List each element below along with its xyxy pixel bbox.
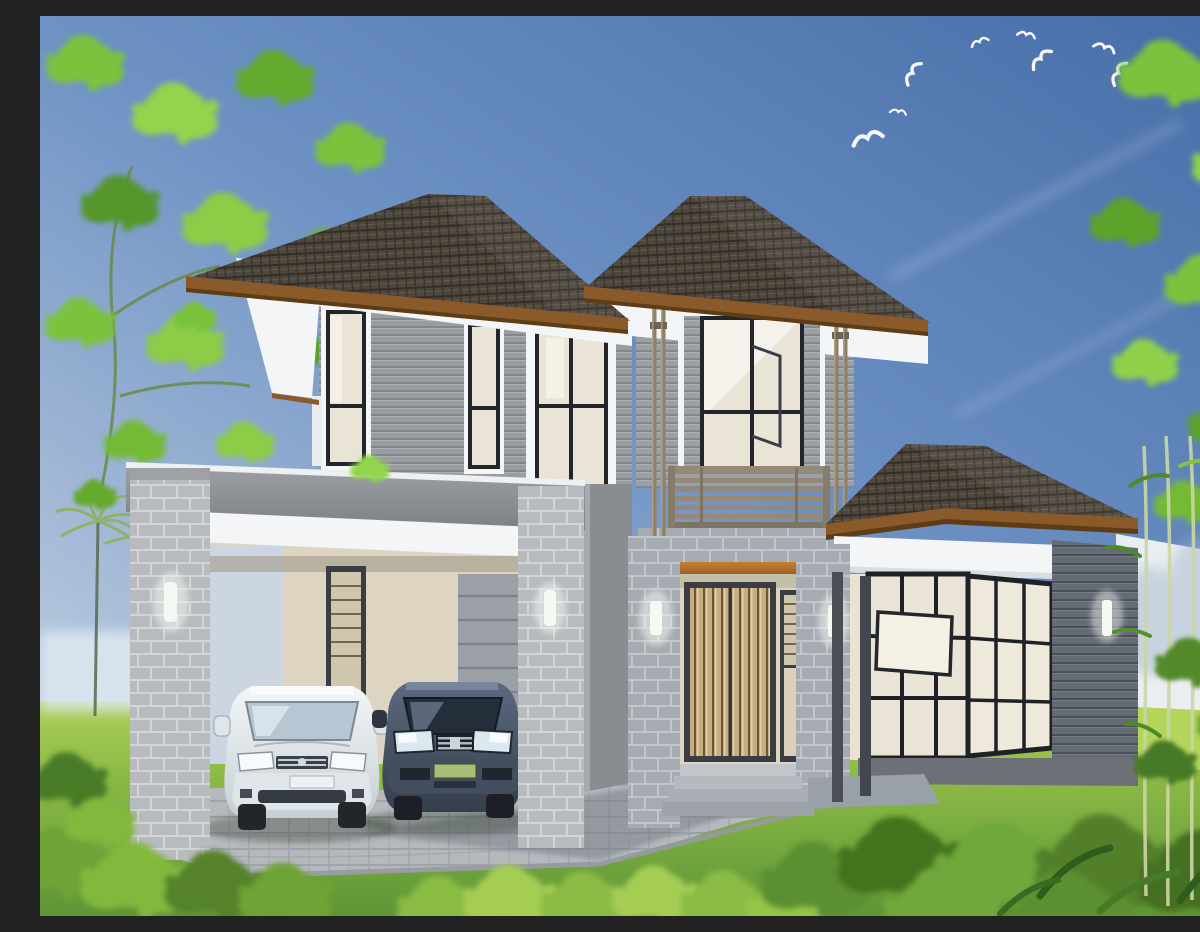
headlight (238, 752, 274, 771)
entry-lamp-left (639, 590, 673, 646)
side-mirror (214, 716, 230, 736)
side-mirror (372, 710, 387, 728)
left-corner-trim (312, 396, 322, 466)
wheel (394, 796, 422, 820)
entry-pillar-left (628, 536, 680, 828)
left-window-b (464, 318, 504, 474)
license-plate (434, 764, 476, 778)
carport-lamp-left (153, 572, 189, 632)
entry-door (684, 582, 776, 762)
left-window-a (321, 304, 371, 472)
dark-car (372, 682, 533, 820)
carport-pillar-left (130, 468, 210, 860)
carport-lamp-right (534, 582, 566, 634)
carport-interior-window (326, 566, 366, 698)
headlight (330, 752, 366, 771)
right-wall-lamp (1091, 590, 1123, 642)
porch-step-slab (808, 774, 940, 808)
tower-window (678, 309, 825, 474)
open-casement (876, 612, 952, 675)
side-wall-strip (584, 484, 632, 814)
car-shadow (360, 809, 544, 835)
horizon-haze (40, 631, 140, 711)
wheel (486, 794, 514, 818)
corner-glass-window (868, 574, 1052, 758)
entry-steps (662, 764, 814, 816)
scene-canvas (40, 16, 1200, 916)
house-rendering: Modern two-storey house with dark hip ti… (40, 16, 1200, 916)
white-car (214, 686, 390, 830)
wheel (238, 804, 266, 830)
wheel (338, 802, 366, 828)
right-wing-siding (1052, 540, 1138, 760)
carport-pillar-right (518, 486, 584, 848)
